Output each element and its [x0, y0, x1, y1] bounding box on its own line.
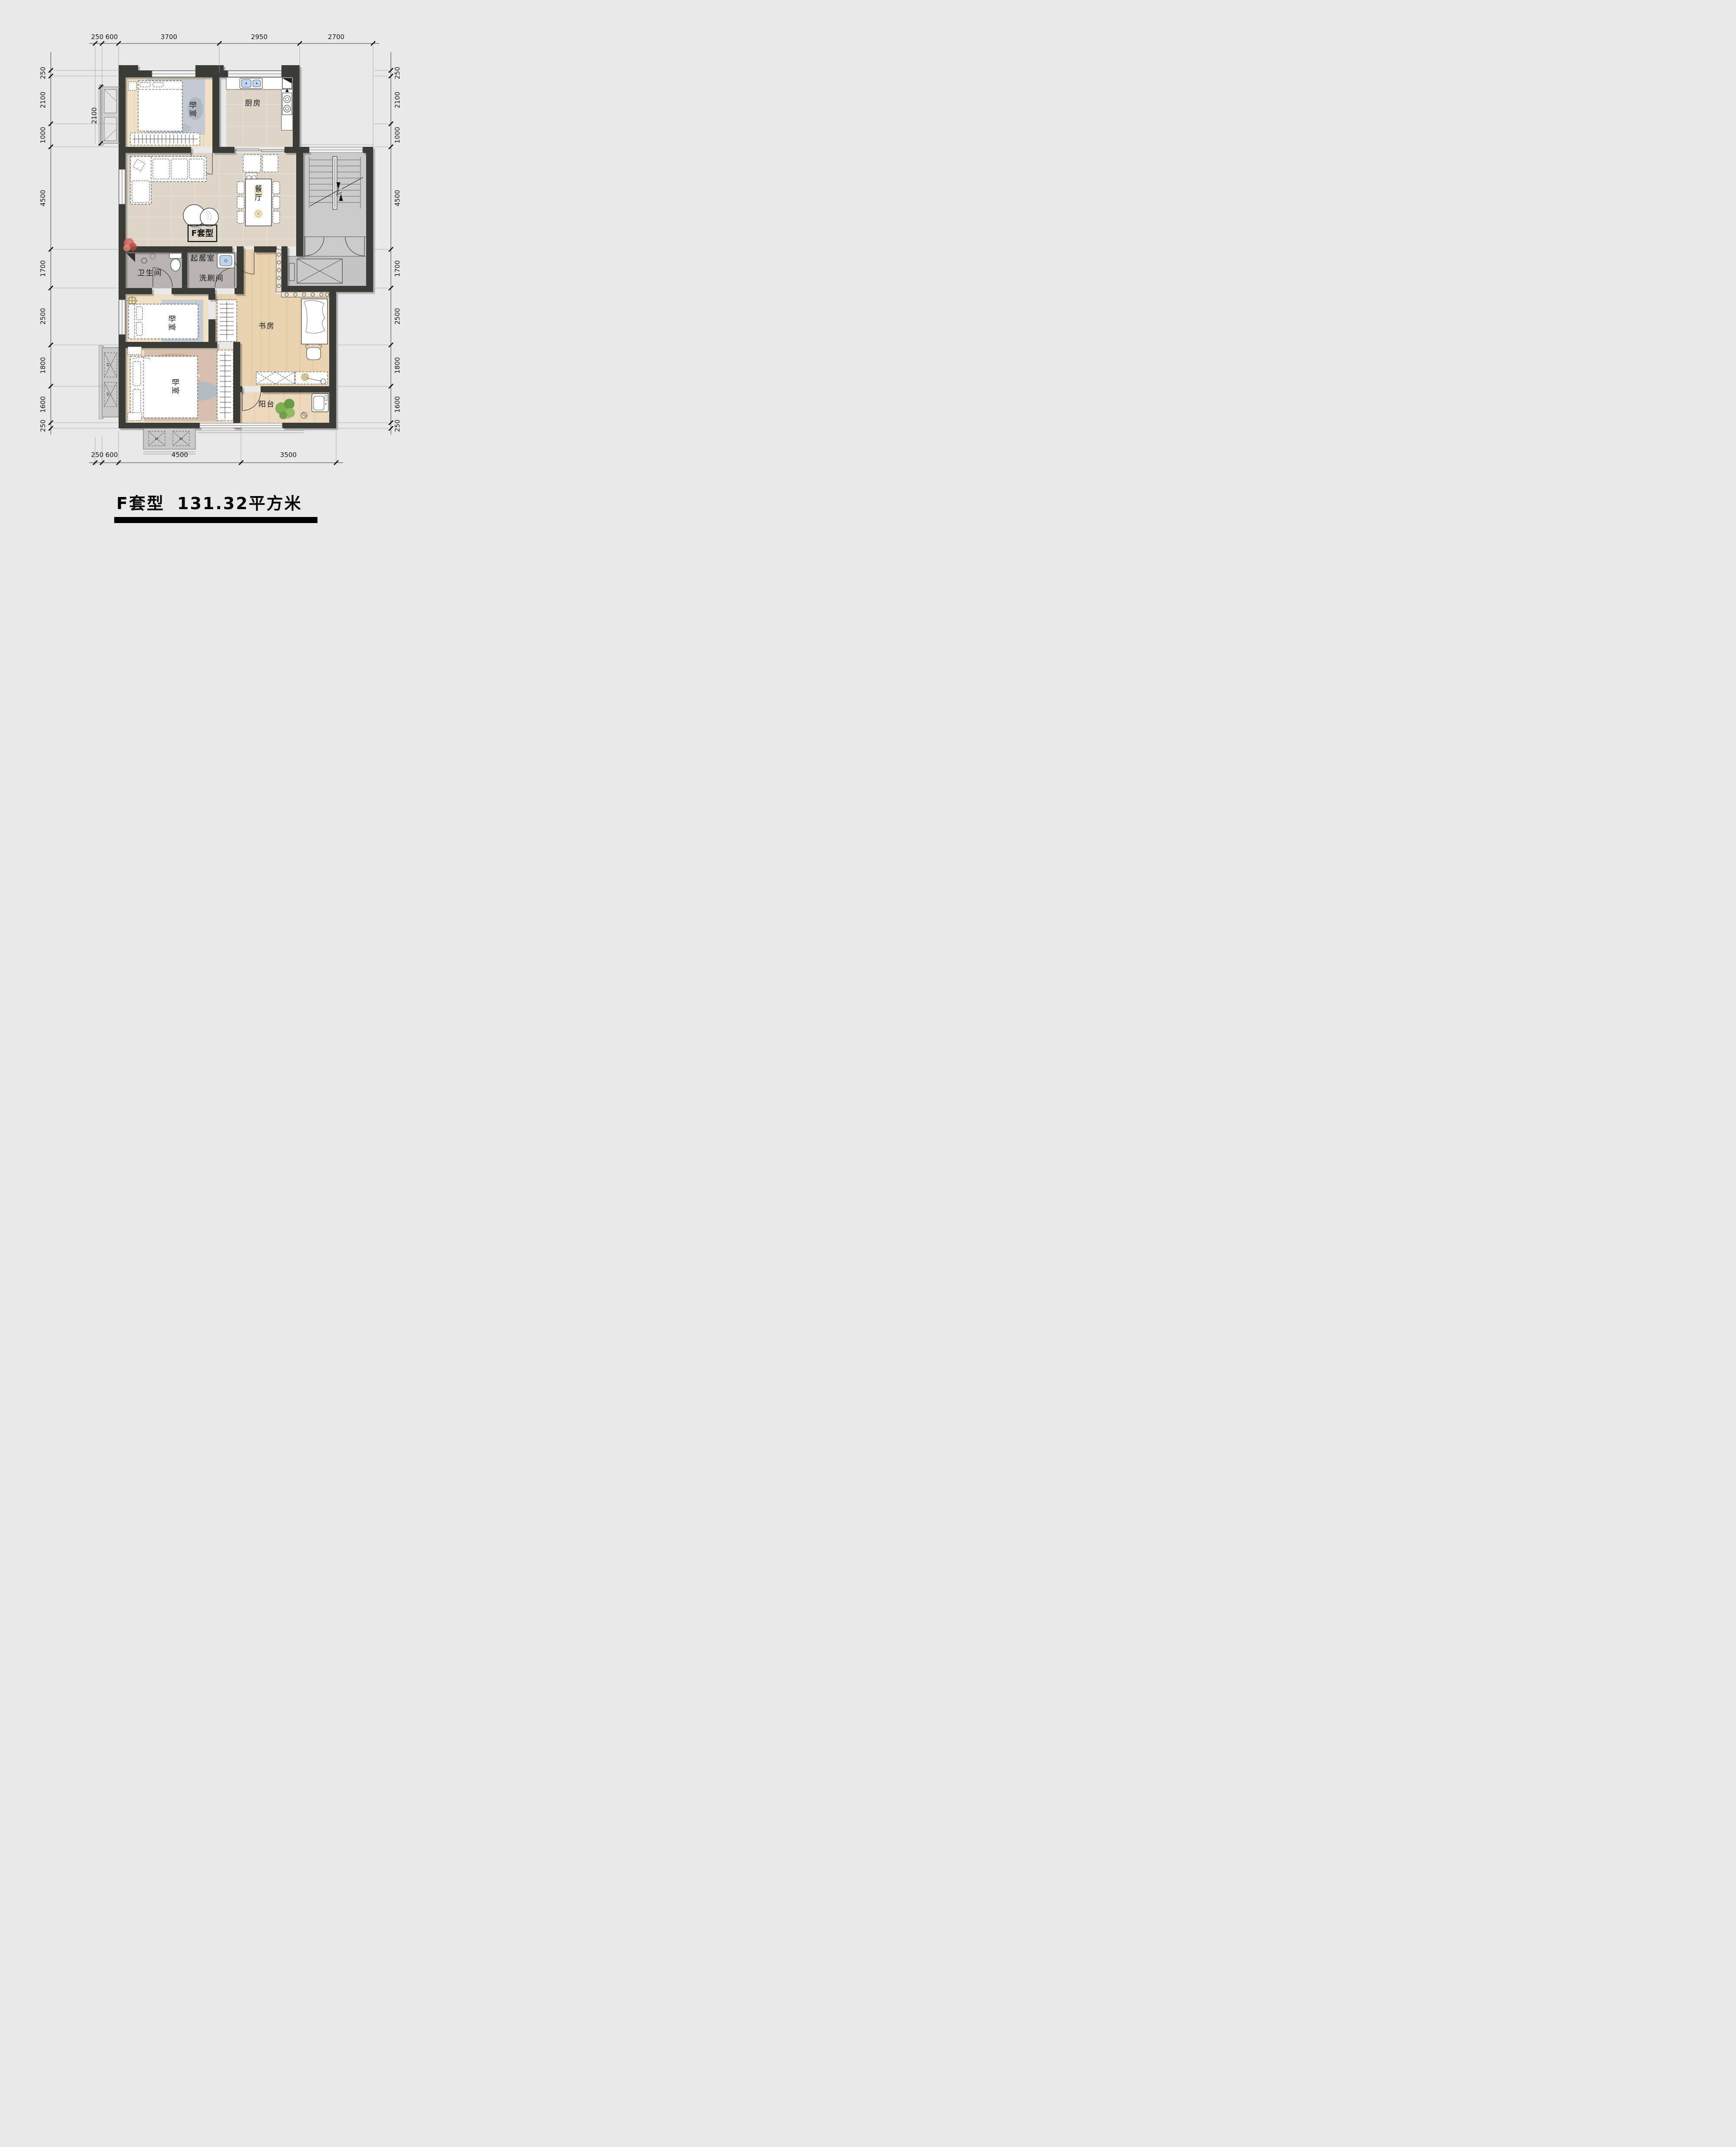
dim-labels-left: 250 2100 1000 4500 1700 2500 1800 1600 2… — [39, 67, 47, 432]
dim-labels-top: 250 600 3700 2950 2700 — [91, 33, 344, 41]
nightstand — [129, 82, 136, 90]
svg-text:1700: 1700 — [393, 260, 401, 277]
svg-text:600: 600 — [106, 33, 118, 41]
window-kitchen-top — [228, 71, 281, 77]
label-living: 起居室 — [191, 254, 215, 263]
nightstand — [128, 347, 142, 355]
study-desk — [256, 371, 327, 384]
ac-unit-label: KT — [155, 437, 159, 441]
kitchen-stove — [282, 93, 292, 115]
wardrobe-bedroom-top — [130, 133, 200, 145]
door-kitchen-sliding — [236, 149, 284, 152]
double-bed-bottom — [128, 347, 198, 421]
ac-unit-label: KT — [106, 392, 110, 396]
svg-text:1800: 1800 — [393, 357, 401, 374]
dim-labels-bottom: 250 600 4500 3500 — [91, 451, 297, 459]
svg-text:2100: 2100 — [393, 92, 401, 108]
ac-platform-left: KT KT — [99, 346, 119, 419]
svg-text:3500: 3500 — [280, 451, 297, 459]
svg-text:2950: 2950 — [251, 33, 268, 41]
svg-text:250: 250 — [393, 67, 401, 80]
floorplan-drawing: KT KT KT KT — [0, 0, 434, 537]
title-underline — [114, 517, 317, 523]
ac-unit-label: KT — [179, 437, 183, 441]
svg-text:250: 250 — [39, 420, 47, 432]
svg-text:1600: 1600 — [393, 396, 401, 413]
label-bedroom-middle: 卧室 — [167, 315, 176, 331]
window-living-left — [119, 169, 125, 204]
label-dining: 餐厅 — [255, 185, 263, 202]
floorplan-page: KT KT KT KT — [0, 0, 434, 537]
ac-platform-bottom: KT KT — [143, 428, 195, 454]
label-bedroom-top: 卧室 — [188, 101, 197, 118]
unit-type-box-label: F套型 — [192, 228, 214, 238]
window-bedroom-top — [152, 71, 195, 77]
svg-text:250: 250 — [91, 451, 104, 459]
svg-text:1800: 1800 — [39, 357, 47, 374]
svg-text:250: 250 — [39, 67, 47, 80]
label-balcony: 阳台 — [258, 400, 275, 409]
title-block: F套型 131.32平方米 — [114, 494, 317, 523]
svg-text:2500: 2500 — [393, 308, 401, 325]
svg-text:4500: 4500 — [393, 190, 401, 206]
label-study: 书房 — [258, 322, 275, 331]
title-name: F套型 — [116, 494, 165, 513]
svg-text:4500: 4500 — [172, 451, 188, 459]
wardrobe-hall-niche — [217, 300, 237, 341]
svg-text:250: 250 — [393, 420, 401, 432]
title-area: 131.32平方米 — [177, 494, 302, 513]
svg-text:1000: 1000 — [393, 127, 401, 143]
svg-text:600: 600 — [106, 451, 118, 459]
label-kitchen: 厨房 — [245, 99, 261, 108]
hall-floor-upper — [244, 249, 276, 294]
label-washroom: 洗刷间 — [199, 274, 224, 283]
elevator — [289, 259, 342, 283]
svg-text:4500: 4500 — [39, 190, 47, 206]
dim-label-inner-left: 2100 — [90, 107, 98, 124]
wardrobe-bedroom-bottom — [217, 350, 233, 421]
svg-text:2700: 2700 — [328, 33, 344, 41]
svg-text:1000: 1000 — [39, 127, 47, 143]
svg-text:250: 250 — [91, 33, 104, 41]
daybed-study — [301, 299, 327, 344]
window-bedroom-middle-left — [119, 300, 125, 335]
kitchen-sink — [240, 78, 262, 89]
label-bathroom: 卫生间 — [138, 269, 162, 278]
ac-unit-label: KT — [106, 362, 110, 366]
svg-text:2500: 2500 — [39, 308, 47, 325]
nightstand — [128, 413, 142, 421]
svg-text:3700: 3700 — [161, 33, 177, 41]
svg-text:1600: 1600 — [39, 396, 47, 413]
dim-labels-right: 250 2100 1000 4500 1700 2500 1800 1600 2… — [393, 67, 401, 432]
double-bed-middle — [129, 304, 198, 339]
svg-text:1700: 1700 — [39, 260, 47, 277]
label-bedroom-bottom: 卧室 — [171, 378, 179, 395]
window-stairwell — [300, 145, 373, 152]
svg-text:2100: 2100 — [39, 92, 47, 108]
